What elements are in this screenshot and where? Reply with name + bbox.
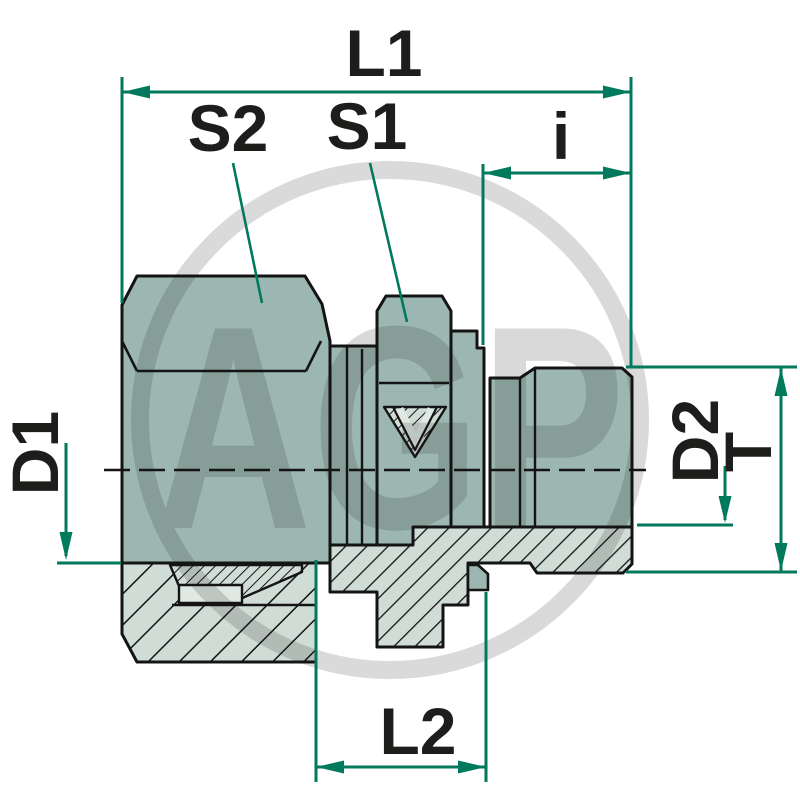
s2-label: S2 xyxy=(188,91,269,165)
fitting-diagram: AGP L1 xyxy=(0,0,800,800)
i-label: i xyxy=(552,99,570,173)
d2-arrow-top xyxy=(775,368,788,396)
l1-arrow-right xyxy=(603,86,631,99)
d1-label: D1 xyxy=(0,411,72,495)
i-arrow-left xyxy=(483,167,511,180)
watermark-text: AGP xyxy=(155,266,625,590)
i-arrow-right xyxy=(603,167,631,180)
technical-drawing-page: AGP L1 xyxy=(0,0,800,800)
l1-arrow-left xyxy=(122,86,150,99)
t-label: T xyxy=(711,432,785,472)
l2-arrow-left xyxy=(316,761,344,774)
l2-arrow-right xyxy=(458,761,486,774)
s1-label: S1 xyxy=(327,89,408,163)
t-arrow xyxy=(719,496,732,523)
d1-arrow xyxy=(60,532,73,560)
l2-label: L2 xyxy=(379,694,456,768)
d2-arrow-bottom xyxy=(775,543,788,571)
l1-label: L1 xyxy=(345,16,422,90)
